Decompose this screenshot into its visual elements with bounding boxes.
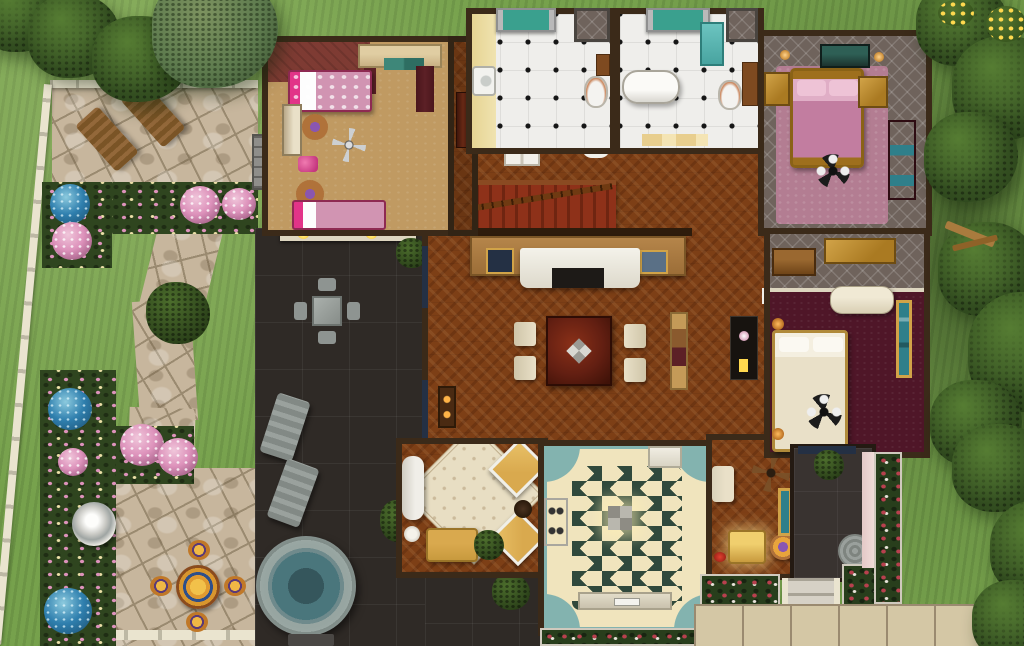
checker-floor: [572, 466, 682, 610]
candle-table[interactable]: [404, 526, 420, 542]
pink-flower-bush[interactable]: [222, 188, 256, 220]
pink-bedroom: [758, 30, 932, 236]
cabinet[interactable]: [742, 62, 758, 106]
nightstand[interactable]: [764, 72, 790, 106]
nightstand[interactable]: [858, 76, 888, 108]
navy-end-table[interactable]: [640, 250, 668, 274]
curtain: [416, 66, 434, 112]
kids-bedroom: [262, 36, 454, 236]
pillow: [797, 80, 826, 96]
ceiling-fan[interactable]: [752, 454, 790, 492]
patio-chair[interactable]: [318, 331, 336, 344]
pink-flower-bush[interactable]: [58, 448, 88, 476]
coffee-table[interactable]: [552, 268, 604, 288]
bathroom-1: [466, 8, 616, 154]
pillow: [813, 337, 843, 352]
wall-candle[interactable]: [874, 52, 884, 62]
sitting-nook: [396, 438, 548, 578]
tree-canopy: [952, 424, 1024, 512]
linen-closet[interactable]: [574, 8, 610, 42]
desk-lamp[interactable]: [739, 359, 748, 372]
mosaic-table[interactable]: [176, 565, 220, 609]
round-table[interactable]: [514, 500, 532, 518]
ceiling-lamp[interactable]: [816, 154, 850, 188]
table-with-lamp[interactable]: [302, 114, 328, 140]
pillow: [779, 337, 809, 352]
dining-chair[interactable]: [514, 322, 536, 346]
bathroom-sink[interactable]: [472, 66, 496, 96]
yellow-flower-shrub[interactable]: [986, 6, 1024, 42]
mosaic-stool[interactable]: [150, 576, 172, 596]
potted-fern[interactable]: [492, 574, 530, 610]
yellow-flower-shrub[interactable]: [938, 0, 974, 26]
kitchen-counter[interactable]: [578, 592, 672, 610]
blue-flower-bush[interactable]: [50, 184, 90, 224]
fireplace[interactable]: [438, 386, 456, 428]
mosaic-stool[interactable]: [224, 576, 246, 596]
rose-bed: [874, 452, 902, 604]
clawfoot-bathtub[interactable]: [622, 70, 680, 104]
dining-chair[interactable]: [514, 356, 536, 380]
double-bed-pink[interactable]: [790, 68, 864, 168]
kitchen: [538, 440, 716, 636]
brown-dresser[interactable]: [772, 248, 816, 276]
maroon-dresser[interactable]: [888, 120, 916, 200]
loveseat[interactable]: [358, 44, 442, 68]
white-chaise[interactable]: [402, 456, 424, 520]
ceiling-fan[interactable]: [806, 394, 842, 430]
lot-view: [0, 0, 1024, 646]
wall-lamp[interactable]: [772, 428, 784, 440]
mosaic-stool[interactable]: [186, 612, 208, 632]
ceiling-lamp[interactable]: [608, 506, 632, 530]
dining-chair[interactable]: [624, 324, 646, 348]
rose-bed: [540, 628, 716, 646]
shower-stall[interactable]: [700, 22, 724, 66]
window: [422, 246, 428, 308]
banister: [462, 183, 613, 213]
garden-fountain[interactable]: [72, 502, 116, 546]
toilet[interactable]: [584, 76, 608, 108]
blue-flower-bush[interactable]: [48, 388, 92, 430]
pink-toy[interactable]: [298, 156, 318, 172]
corner-counter[interactable]: [648, 446, 682, 468]
mosaic-stool[interactable]: [188, 540, 210, 560]
patio-chair[interactable]: [294, 302, 307, 320]
staircase[interactable]: [466, 180, 616, 228]
pillow: [829, 80, 858, 96]
topiary[interactable]: [814, 450, 844, 480]
table-centerpiece[interactable]: [566, 338, 591, 363]
maroon-bedroom: [764, 228, 930, 458]
blue-flower-bush[interactable]: [44, 588, 92, 634]
window: [422, 380, 428, 438]
kitchen-sink[interactable]: [614, 598, 640, 606]
exterior-wall: [862, 452, 874, 568]
pink-flower-bush[interactable]: [180, 186, 220, 224]
hot-tub[interactable]: [256, 536, 356, 636]
bath-mats: [642, 134, 708, 146]
teal-painting[interactable]: [896, 300, 912, 378]
stove[interactable]: [544, 498, 568, 546]
wall-lamp[interactable]: [772, 318, 784, 330]
cream-loveseat[interactable]: [712, 466, 734, 502]
toilet[interactable]: [718, 80, 742, 110]
navy-end-table[interactable]: [486, 248, 514, 274]
cabinet[interactable]: [596, 54, 610, 76]
linen-closet[interactable]: [726, 8, 758, 42]
red-bowl[interactable]: [714, 552, 726, 562]
kids-bed[interactable]: [292, 200, 386, 230]
ceiling-fan[interactable]: [332, 128, 366, 162]
dining-chair[interactable]: [624, 358, 646, 382]
pink-flower-bush[interactable]: [52, 222, 92, 260]
black-desk[interactable]: [730, 316, 758, 380]
patio-table[interactable]: [312, 296, 342, 326]
patio-chair[interactable]: [318, 278, 336, 291]
round-hedge[interactable]: [146, 282, 210, 344]
door-mat: [288, 634, 334, 646]
bathroom-2: [614, 8, 764, 154]
stone-patio-lower: [98, 468, 258, 646]
cream-chaise[interactable]: [830, 286, 894, 314]
cream-dresser[interactable]: [282, 104, 302, 156]
patio-chair[interactable]: [347, 302, 360, 320]
flower-vase[interactable]: [739, 331, 749, 341]
dining-table[interactable]: [546, 316, 612, 386]
potted-plant[interactable]: [474, 530, 504, 560]
bathroom-window: [496, 8, 556, 32]
gold-dresser[interactable]: [824, 238, 896, 264]
yellow-armchair[interactable]: [728, 530, 766, 564]
gold-sofa[interactable]: [426, 528, 478, 562]
wall-candle[interactable]: [780, 50, 790, 60]
pink-flower-bush[interactable]: [158, 438, 198, 476]
stair-wall: [466, 228, 692, 236]
display-shelf[interactable]: [670, 312, 688, 390]
foot-bench[interactable]: [820, 44, 870, 68]
